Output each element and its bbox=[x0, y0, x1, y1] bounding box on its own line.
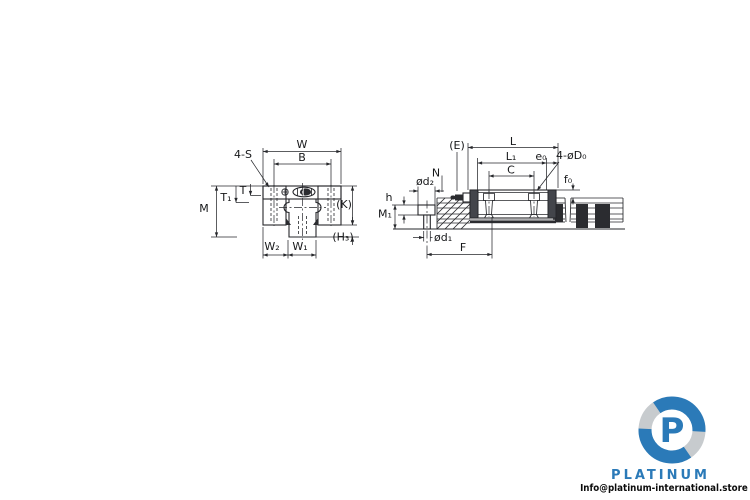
dim-label-w: W bbox=[297, 138, 308, 151]
technical-drawing-page: W B 4-S M T₁ T (K) (H₃) bbox=[0, 0, 750, 500]
side-view-drawing: L L₁ e₀ C (E) 4-øD₀ f₀ N ød₂ bbox=[378, 135, 625, 259]
dim-label-m1: M₁ bbox=[378, 208, 392, 221]
dim-label-f: F bbox=[460, 241, 466, 254]
dim-label-f0: f₀ bbox=[564, 173, 573, 186]
logo-letter: P bbox=[660, 411, 685, 451]
dim-label-c: C bbox=[507, 164, 515, 177]
dim-label-e: (E) bbox=[449, 139, 465, 152]
dim-label-4s: 4-S bbox=[234, 148, 252, 161]
nipple-base-icon bbox=[463, 193, 470, 202]
dim-label-l: L bbox=[510, 135, 517, 148]
dim-label-t: T bbox=[239, 184, 247, 197]
nipple-tip-icon bbox=[451, 196, 456, 200]
contact-email: Info@platinum-international.store bbox=[580, 483, 748, 494]
dim-label-h3: (H₃) bbox=[332, 231, 353, 244]
dim-label-m: M bbox=[199, 202, 209, 215]
dim-label-e0: e₀ bbox=[535, 150, 547, 163]
dim-label-4d0: 4-øD₀ bbox=[556, 149, 587, 162]
rail-right-section bbox=[553, 198, 623, 228]
mounting-bolt-detail bbox=[418, 201, 435, 248]
nipple-body-icon bbox=[455, 195, 463, 201]
left-end-cap bbox=[470, 190, 478, 218]
dim-label-w2: W₂ bbox=[264, 240, 279, 253]
dim-label-b: B bbox=[298, 151, 306, 164]
dim-label-t1: T₁ bbox=[219, 191, 231, 204]
dim-label-l1: L₁ bbox=[506, 150, 517, 163]
dim-label-d2: ød₂ bbox=[416, 175, 434, 188]
dim-label-w1: W₁ bbox=[292, 240, 307, 253]
brand-name: PLATINUM bbox=[611, 468, 710, 483]
dim-label-h: h bbox=[386, 191, 393, 204]
front-view-drawing: W B 4-S M T₁ T (K) (H₃) bbox=[199, 138, 359, 259]
bolt-head bbox=[418, 205, 435, 215]
rail-left-section bbox=[437, 198, 470, 229]
platinum-logo-mark: P bbox=[612, 386, 732, 468]
dim-label-k: (K) bbox=[336, 198, 352, 211]
dim-label-d1: ød₁ bbox=[434, 231, 452, 244]
right-end-cap bbox=[548, 190, 556, 218]
